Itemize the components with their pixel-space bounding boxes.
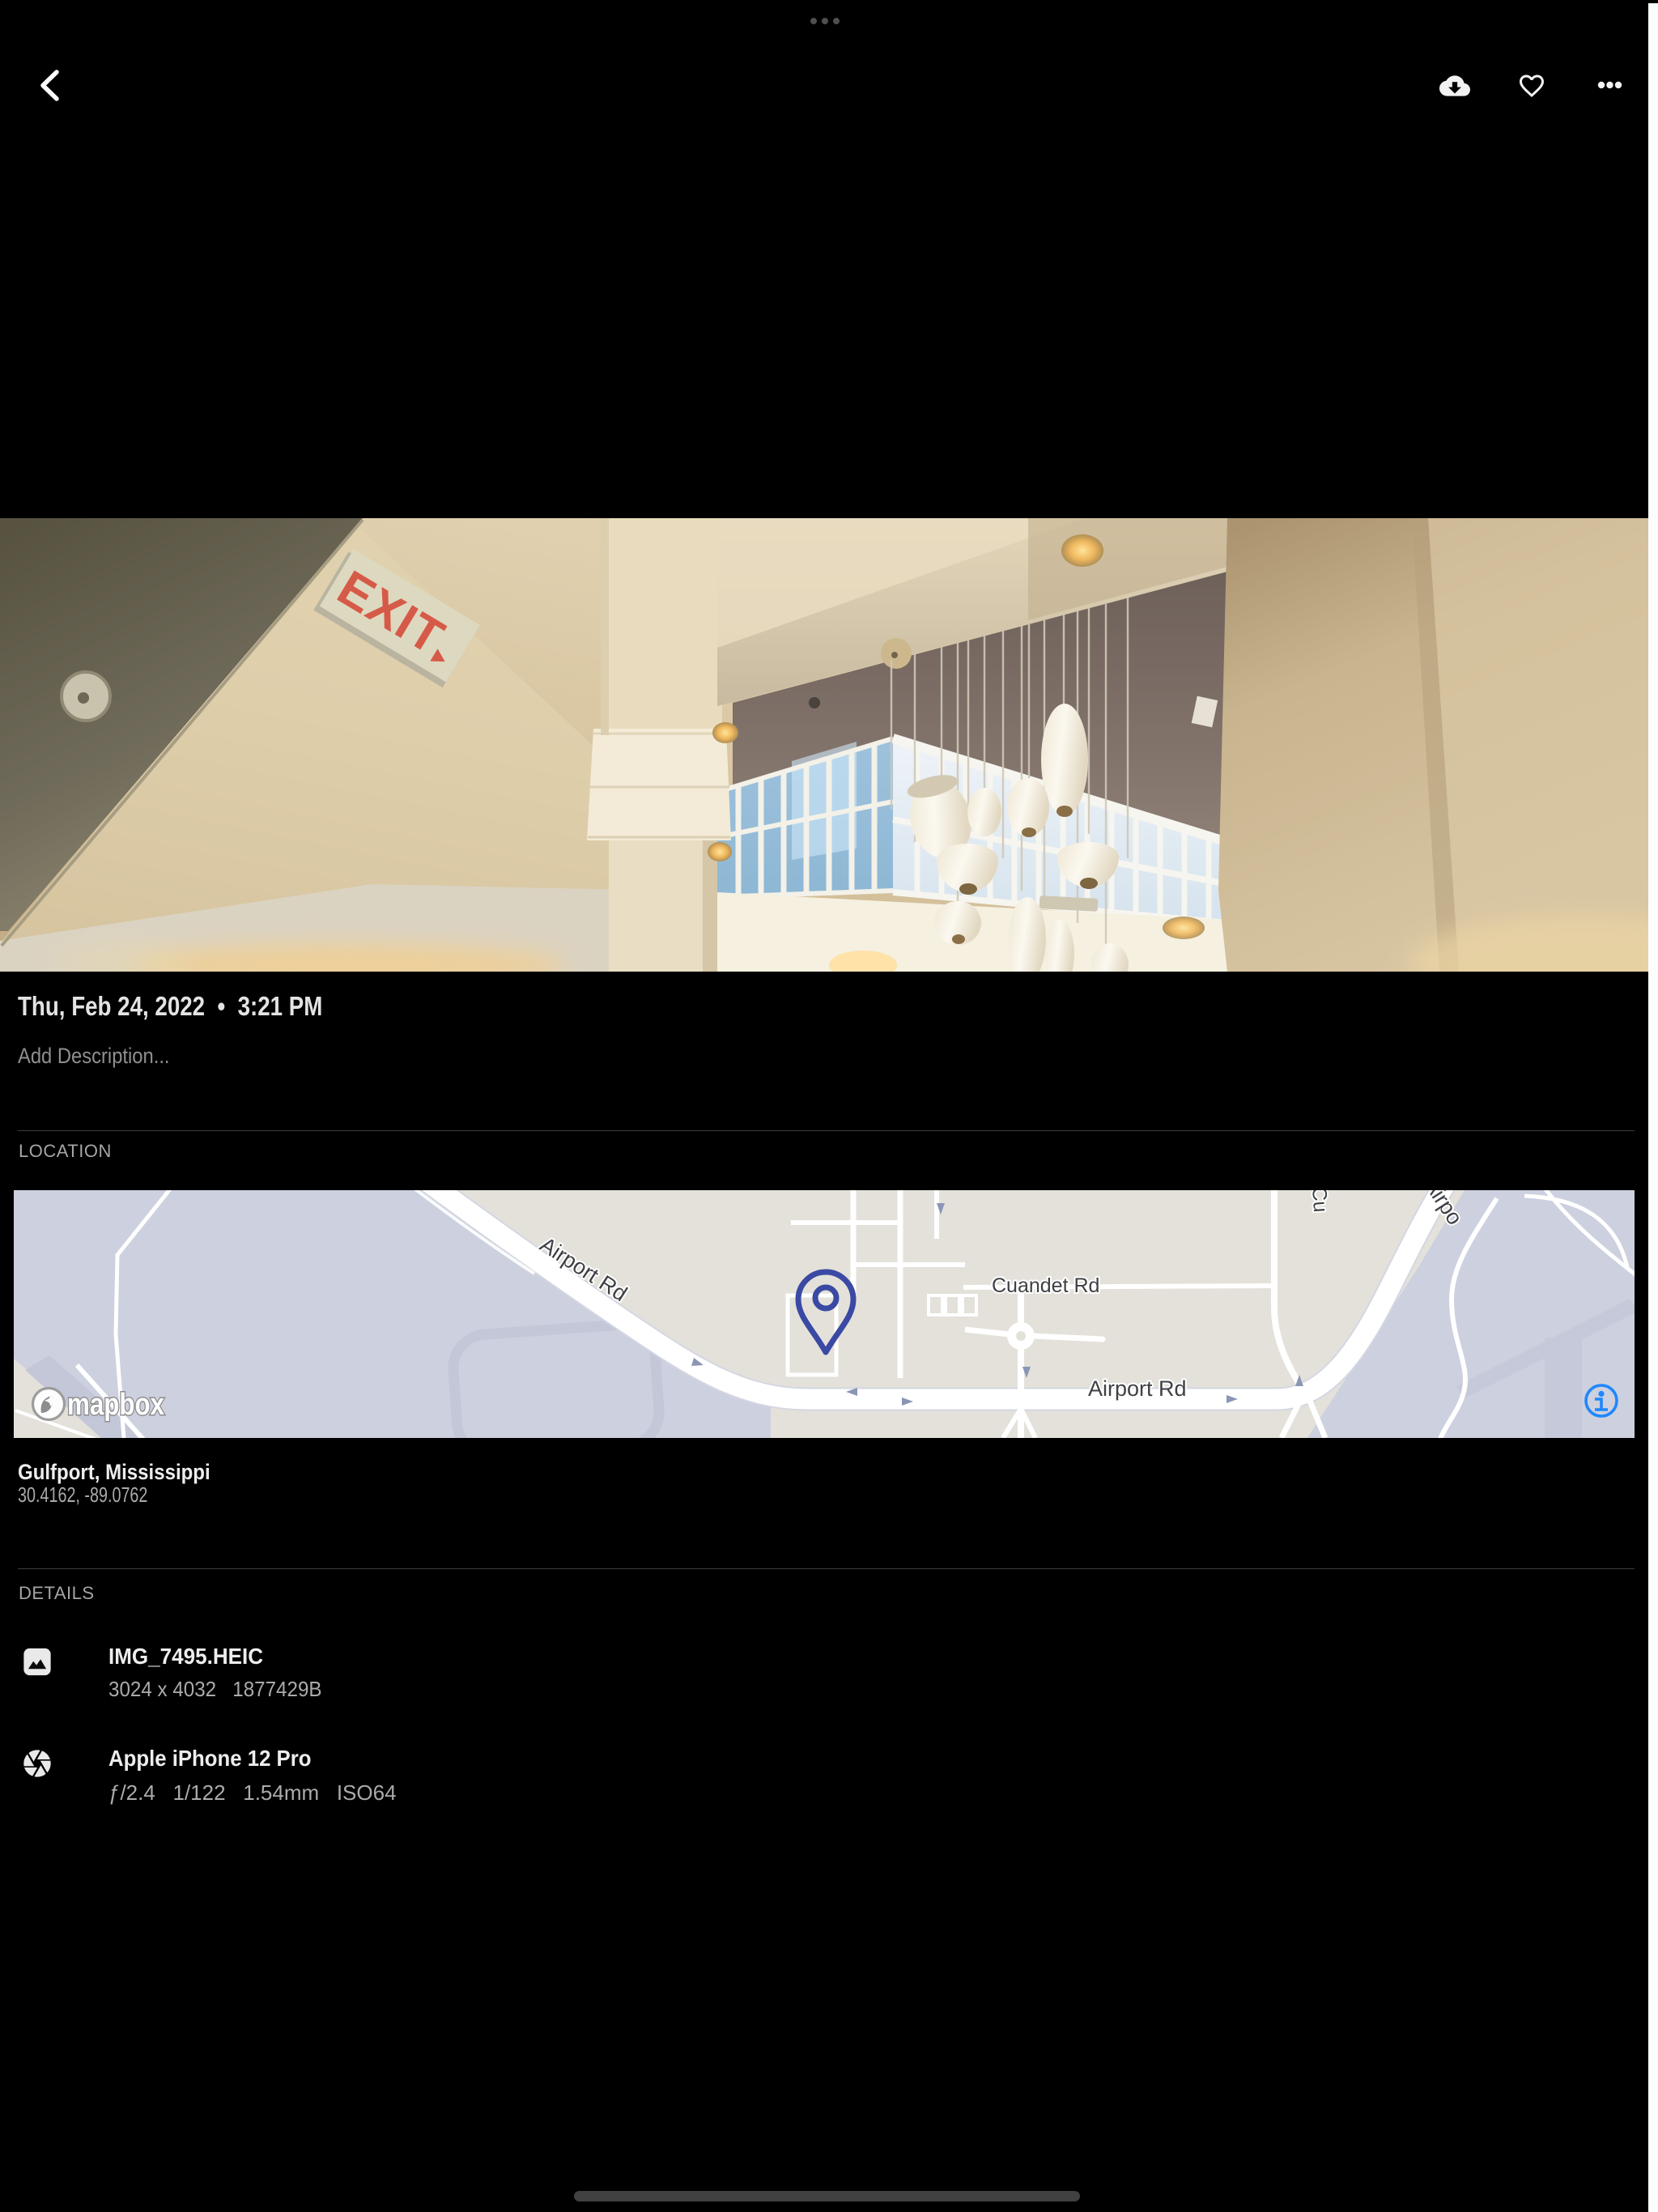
svg-text:Airport Rd: Airport Rd xyxy=(1088,1376,1187,1401)
svg-text:mapbox: mapbox xyxy=(67,1388,164,1422)
svg-text:Cu: Cu xyxy=(1307,1190,1332,1213)
svg-text:Cuandet Rd: Cuandet Rd xyxy=(992,1274,1099,1297)
